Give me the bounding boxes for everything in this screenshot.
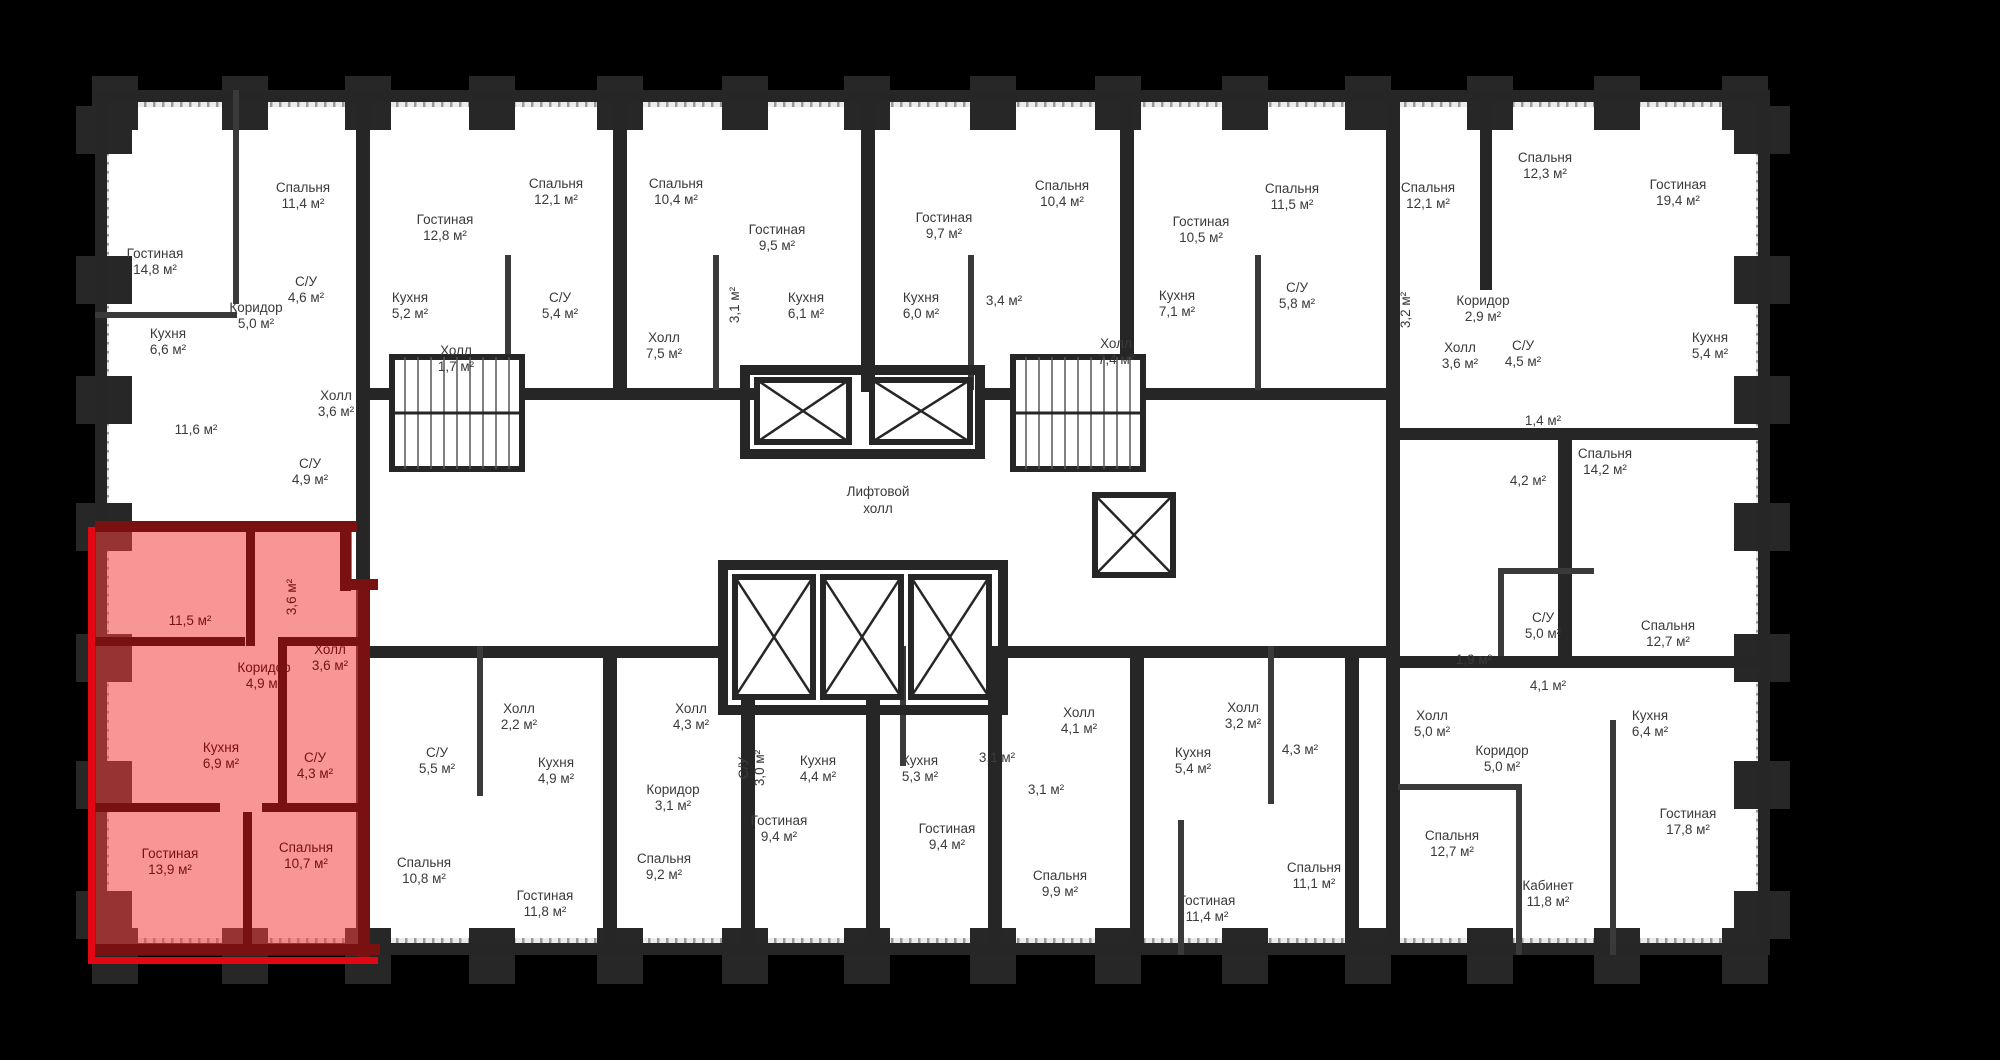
area-label: 3,1 м²: [979, 750, 1016, 765]
area-label: 3,1 м²: [727, 286, 742, 323]
floor-plan-screenshot: Гостиная14,8 м²Спальня11,4 м²Кухня6,6 м²…: [0, 0, 2000, 1060]
room-label: Гостиная11,8 м²: [517, 888, 574, 919]
area-label: 3,2 м²: [1398, 291, 1413, 328]
room-label: Спальня12,1 м²: [529, 176, 583, 207]
room-label: Гостиная19,4 м²: [1650, 177, 1707, 208]
room-label: Спальня11,1 м²: [1287, 860, 1341, 891]
room-label: Спальня10,4 м²: [1035, 178, 1089, 209]
area-label: 1,4 м²: [1525, 413, 1562, 428]
room-label: Кухня6,9 м²: [203, 740, 240, 771]
area-label: 11,5 м²: [169, 613, 212, 628]
room-label: Гостиная17,8 м²: [1660, 806, 1717, 837]
room-label: Кухня5,4 м²: [1692, 330, 1729, 361]
area-label: 3,6 м²: [284, 578, 299, 615]
room-label: Кухня7,1 м²: [1159, 288, 1196, 319]
room-label: Холл4,1 м²: [1061, 705, 1098, 736]
area-label: 4,3 м²: [1282, 742, 1319, 757]
room-label: Спальня10,7 м²: [279, 840, 333, 871]
room-label: Спальня14,2 м²: [1578, 446, 1632, 477]
room-label: Кухня4,4 м²: [800, 753, 837, 784]
room-label: Холл4,3 м²: [673, 701, 710, 732]
room-label: Холл3,6 м²: [318, 388, 355, 419]
floor-plan: Гостиная14,8 м²Спальня11,4 м²Кухня6,6 м²…: [0, 0, 2000, 1060]
room-label: Холл5,0 м²: [1414, 708, 1451, 739]
room-label: Гостиная12,8 м²: [417, 212, 474, 243]
room-label: Кухня4,9 м²: [538, 755, 575, 786]
room-label: Спальня12,1 м²: [1401, 180, 1455, 211]
room-label: Спальня11,5 м²: [1265, 181, 1319, 212]
area-label: 1,9 м²: [1456, 652, 1493, 667]
room-label: Кухня6,4 м²: [1632, 708, 1669, 739]
room-label: Спальня12,7 м²: [1641, 618, 1695, 649]
room-label: Холл7,5 м²: [646, 330, 683, 361]
area-label: 4,2 м²: [1510, 473, 1547, 488]
room-label: Спальня11,4 м²: [276, 180, 330, 211]
room-label: Кухня5,3 м²: [902, 753, 939, 784]
room-label: Гостиная11,4 м²: [1179, 893, 1236, 924]
room-label: Кухня5,4 м²: [1175, 745, 1212, 776]
room-label: Холл3,2 м²: [1225, 700, 1262, 731]
area-label: 4,1 м²: [1530, 678, 1567, 693]
room-label: Гостиная14,8 м²: [127, 246, 184, 277]
room-label: Кухня5,2 м²: [392, 290, 429, 321]
area-label: 3,1 м²: [1028, 782, 1065, 797]
room-label: Спальня10,8 м²: [397, 855, 451, 886]
room-label: Кухня6,1 м²: [788, 290, 825, 321]
room-label: Гостиная10,5 м²: [1173, 214, 1230, 245]
room-label: Спальня12,3 м²: [1518, 150, 1572, 181]
room-label: Холл3,6 м²: [1442, 340, 1479, 371]
room-label: Холл7,4 м²: [1098, 336, 1135, 367]
area-label: 3,4 м²: [986, 293, 1023, 308]
room-label: Холл1,7 м²: [438, 343, 475, 374]
room-label: Кухня6,0 м²: [903, 290, 940, 321]
area-label: 11,6 м²: [175, 422, 218, 437]
room-label: Холл2,2 м²: [501, 701, 538, 732]
room-label: Спальня12,7 м²: [1425, 828, 1479, 859]
room-label: Холл3,6 м²: [312, 642, 349, 673]
room-label: Гостиная13,9 м²: [142, 846, 199, 877]
room-label: Спальня10,4 м²: [649, 176, 703, 207]
room-label: Кухня6,6 м²: [150, 326, 187, 357]
room-label: Кабинет11,8 м²: [1522, 878, 1573, 909]
